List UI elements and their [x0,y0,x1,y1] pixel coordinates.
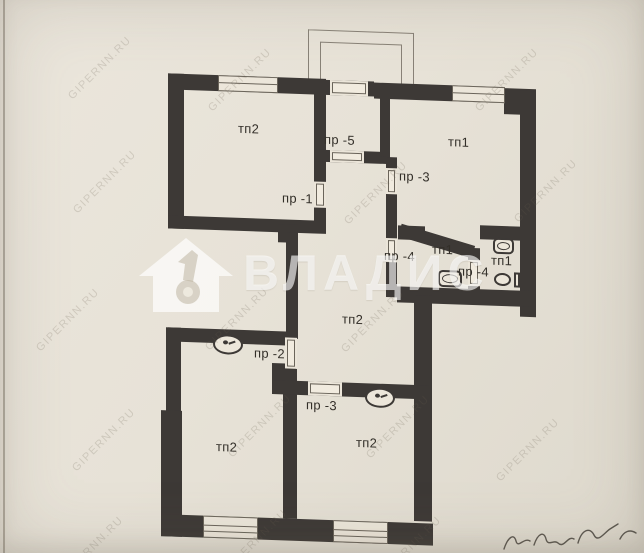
door-label-pr2: пр -2 [254,345,285,361]
brand-watermark: ВЛАДИС [243,244,489,302]
house-key-icon [136,236,236,314]
door-opening-balcony [330,80,368,96]
window-symbol [333,520,388,544]
site-watermark: GIPERNN.RU [70,406,138,474]
balcony-outline-inner [320,42,402,84]
scanned-floorplan-photo: тп2 пр -5 тп1 пр -3 пр -1 пр -4 тп1 пр -… [0,0,644,553]
door-opening-pr3-lower [308,381,342,396]
paper-edge-line [3,0,5,553]
wc-label: тп1 [491,253,512,269]
toilet-icon [494,271,520,290]
wall-segment [161,514,433,545]
wall-segment [168,73,184,229]
wall-segment [380,85,390,157]
room-label-top-left: тп2 [238,121,259,137]
site-watermark: GIPERNN.RU [71,148,139,216]
handwritten-signature [500,521,640,553]
site-watermark: GIPERNN.RU [34,286,102,354]
door-opening-pr2 [285,337,297,368]
room-label-top-right: тп1 [448,134,469,150]
door-opening-pr5 [330,150,364,163]
door-label-pr1: пр -1 [282,190,313,206]
site-watermark: GIPERNN.RU [58,514,126,553]
door-label-pr3-lower: пр -3 [306,397,337,413]
door-opening-pr1 [314,181,326,207]
wall-segment [166,327,181,418]
hall-label-pr5: пр -5 [324,132,355,148]
site-watermark: GIPERNN.RU [66,34,134,102]
round-fixture-icon [365,387,395,408]
window-symbol [203,516,258,540]
